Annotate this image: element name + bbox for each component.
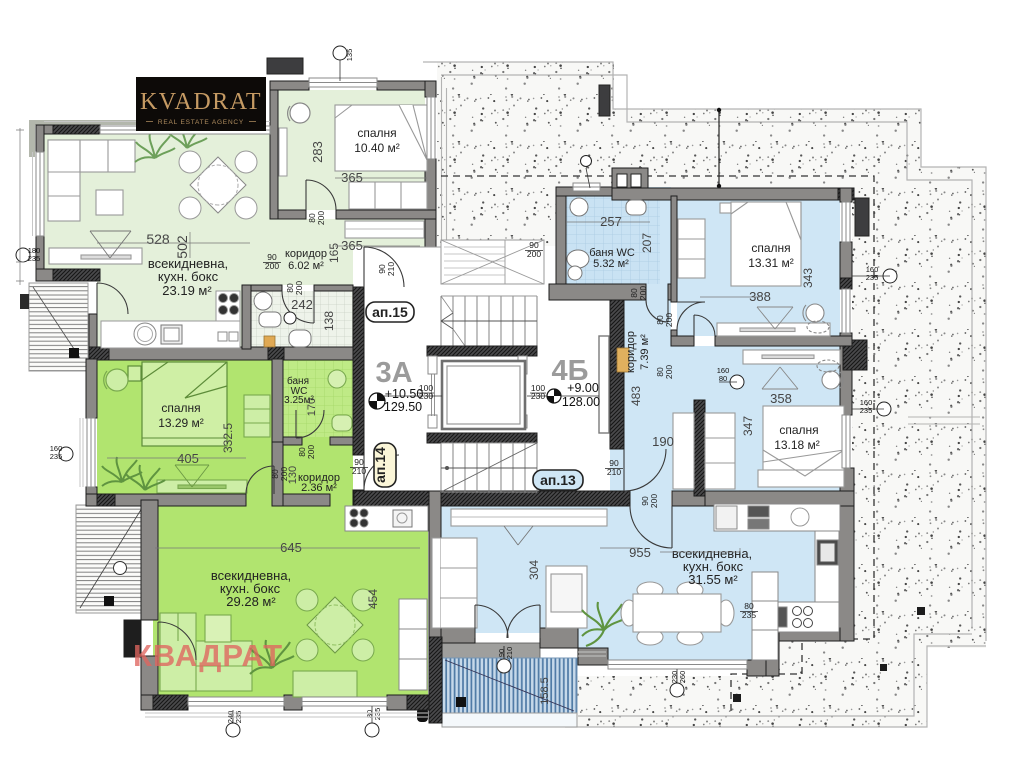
svg-text:5.32 м²: 5.32 м² [593,258,629,270]
svg-text:304: 304 [527,560,541,580]
svg-text:200: 200 [294,281,304,295]
svg-text:коридор: коридор [625,331,637,373]
svg-text:242: 242 [291,297,313,312]
svg-text:200: 200 [664,313,674,327]
svg-text:ап.13: ап.13 [540,472,576,488]
svg-text:235: 235 [860,406,873,415]
svg-text:207: 207 [640,233,654,253]
svg-text:200: 200 [664,365,674,379]
svg-text:10.40 м²: 10.40 м² [354,141,400,155]
svg-text:365: 365 [341,238,363,253]
svg-text:2.36 м²: 2.36 м² [301,482,337,494]
svg-text:235: 235 [373,708,382,721]
svg-text:235: 235 [50,452,63,461]
svg-text:31.55 м²: 31.55 м² [688,572,738,587]
svg-text:129.50: 129.50 [384,400,422,414]
svg-text:343: 343 [801,268,815,288]
svg-text:230: 230 [531,391,545,401]
svg-text:388: 388 [749,289,771,304]
svg-text:502: 502 [174,235,190,259]
svg-text:200: 200 [306,445,316,459]
svg-text:200: 200 [638,286,648,300]
svg-text:347: 347 [741,416,755,436]
svg-text:+9.00: +9.00 [567,381,599,395]
svg-text:210: 210 [505,647,514,660]
svg-text:КВАДРАТ: КВАДРАТ [133,638,283,673]
svg-text:спалня: спалня [161,401,200,415]
svg-text:138: 138 [322,311,336,331]
svg-text:спалня: спалня [779,423,818,437]
svg-text:6.02 м²: 6.02 м² [288,260,324,272]
svg-text:128.00: 128.00 [562,395,600,409]
svg-text:кухн. бокс: кухн. бокс [158,269,219,284]
svg-text:ап.15: ап.15 [372,304,408,320]
svg-text:спалня: спалня [357,126,396,140]
svg-text:200: 200 [649,494,659,508]
svg-text:200: 200 [279,467,289,481]
svg-text:KVADRAT: KVADRAT [140,89,262,115]
svg-text:405: 405 [177,451,199,466]
svg-text:332.5: 332.5 [221,423,235,453]
svg-text:13.18 м²: 13.18 м² [774,438,820,452]
svg-text:365: 365 [341,170,363,185]
svg-text:REAL ESTATE AGENCY: REAL ESTATE AGENCY [158,119,244,126]
svg-text:528: 528 [146,231,170,247]
svg-text:29.28 м²: 29.28 м² [226,594,276,609]
svg-text:135: 135 [345,49,354,62]
svg-text:283: 283 [310,141,325,163]
svg-text:230: 230 [419,391,433,401]
svg-text:235: 235 [28,254,41,263]
svg-text:260: 260 [678,671,687,684]
svg-text:13.29 м²: 13.29 м² [158,416,204,430]
svg-text:190: 190 [652,434,674,449]
svg-text:170: 170 [306,398,318,416]
svg-text:23.19 м²: 23.19 м² [162,283,212,298]
svg-text:7.39 м²: 7.39 м² [639,334,651,370]
svg-text:ап.14: ап.14 [372,447,388,483]
svg-text:645: 645 [280,540,302,555]
svg-text:955: 955 [629,545,651,560]
svg-text:13.31 м²: 13.31 м² [748,256,794,270]
svg-text:3А: 3А [375,357,412,389]
svg-text:235: 235 [866,273,879,282]
svg-text:200: 200 [316,211,326,225]
svg-text:коридор: коридор [285,248,327,260]
svg-text:483: 483 [629,386,643,406]
svg-text:158.5: 158.5 [539,677,551,705]
svg-text:454: 454 [366,589,380,609]
svg-text:спалня: спалня [751,241,790,255]
svg-text:358: 358 [770,391,792,406]
svg-text:+10.50: +10.50 [385,387,424,401]
svg-text:210: 210 [386,262,396,276]
svg-text:80: 80 [719,374,727,383]
svg-text:257: 257 [600,214,622,229]
